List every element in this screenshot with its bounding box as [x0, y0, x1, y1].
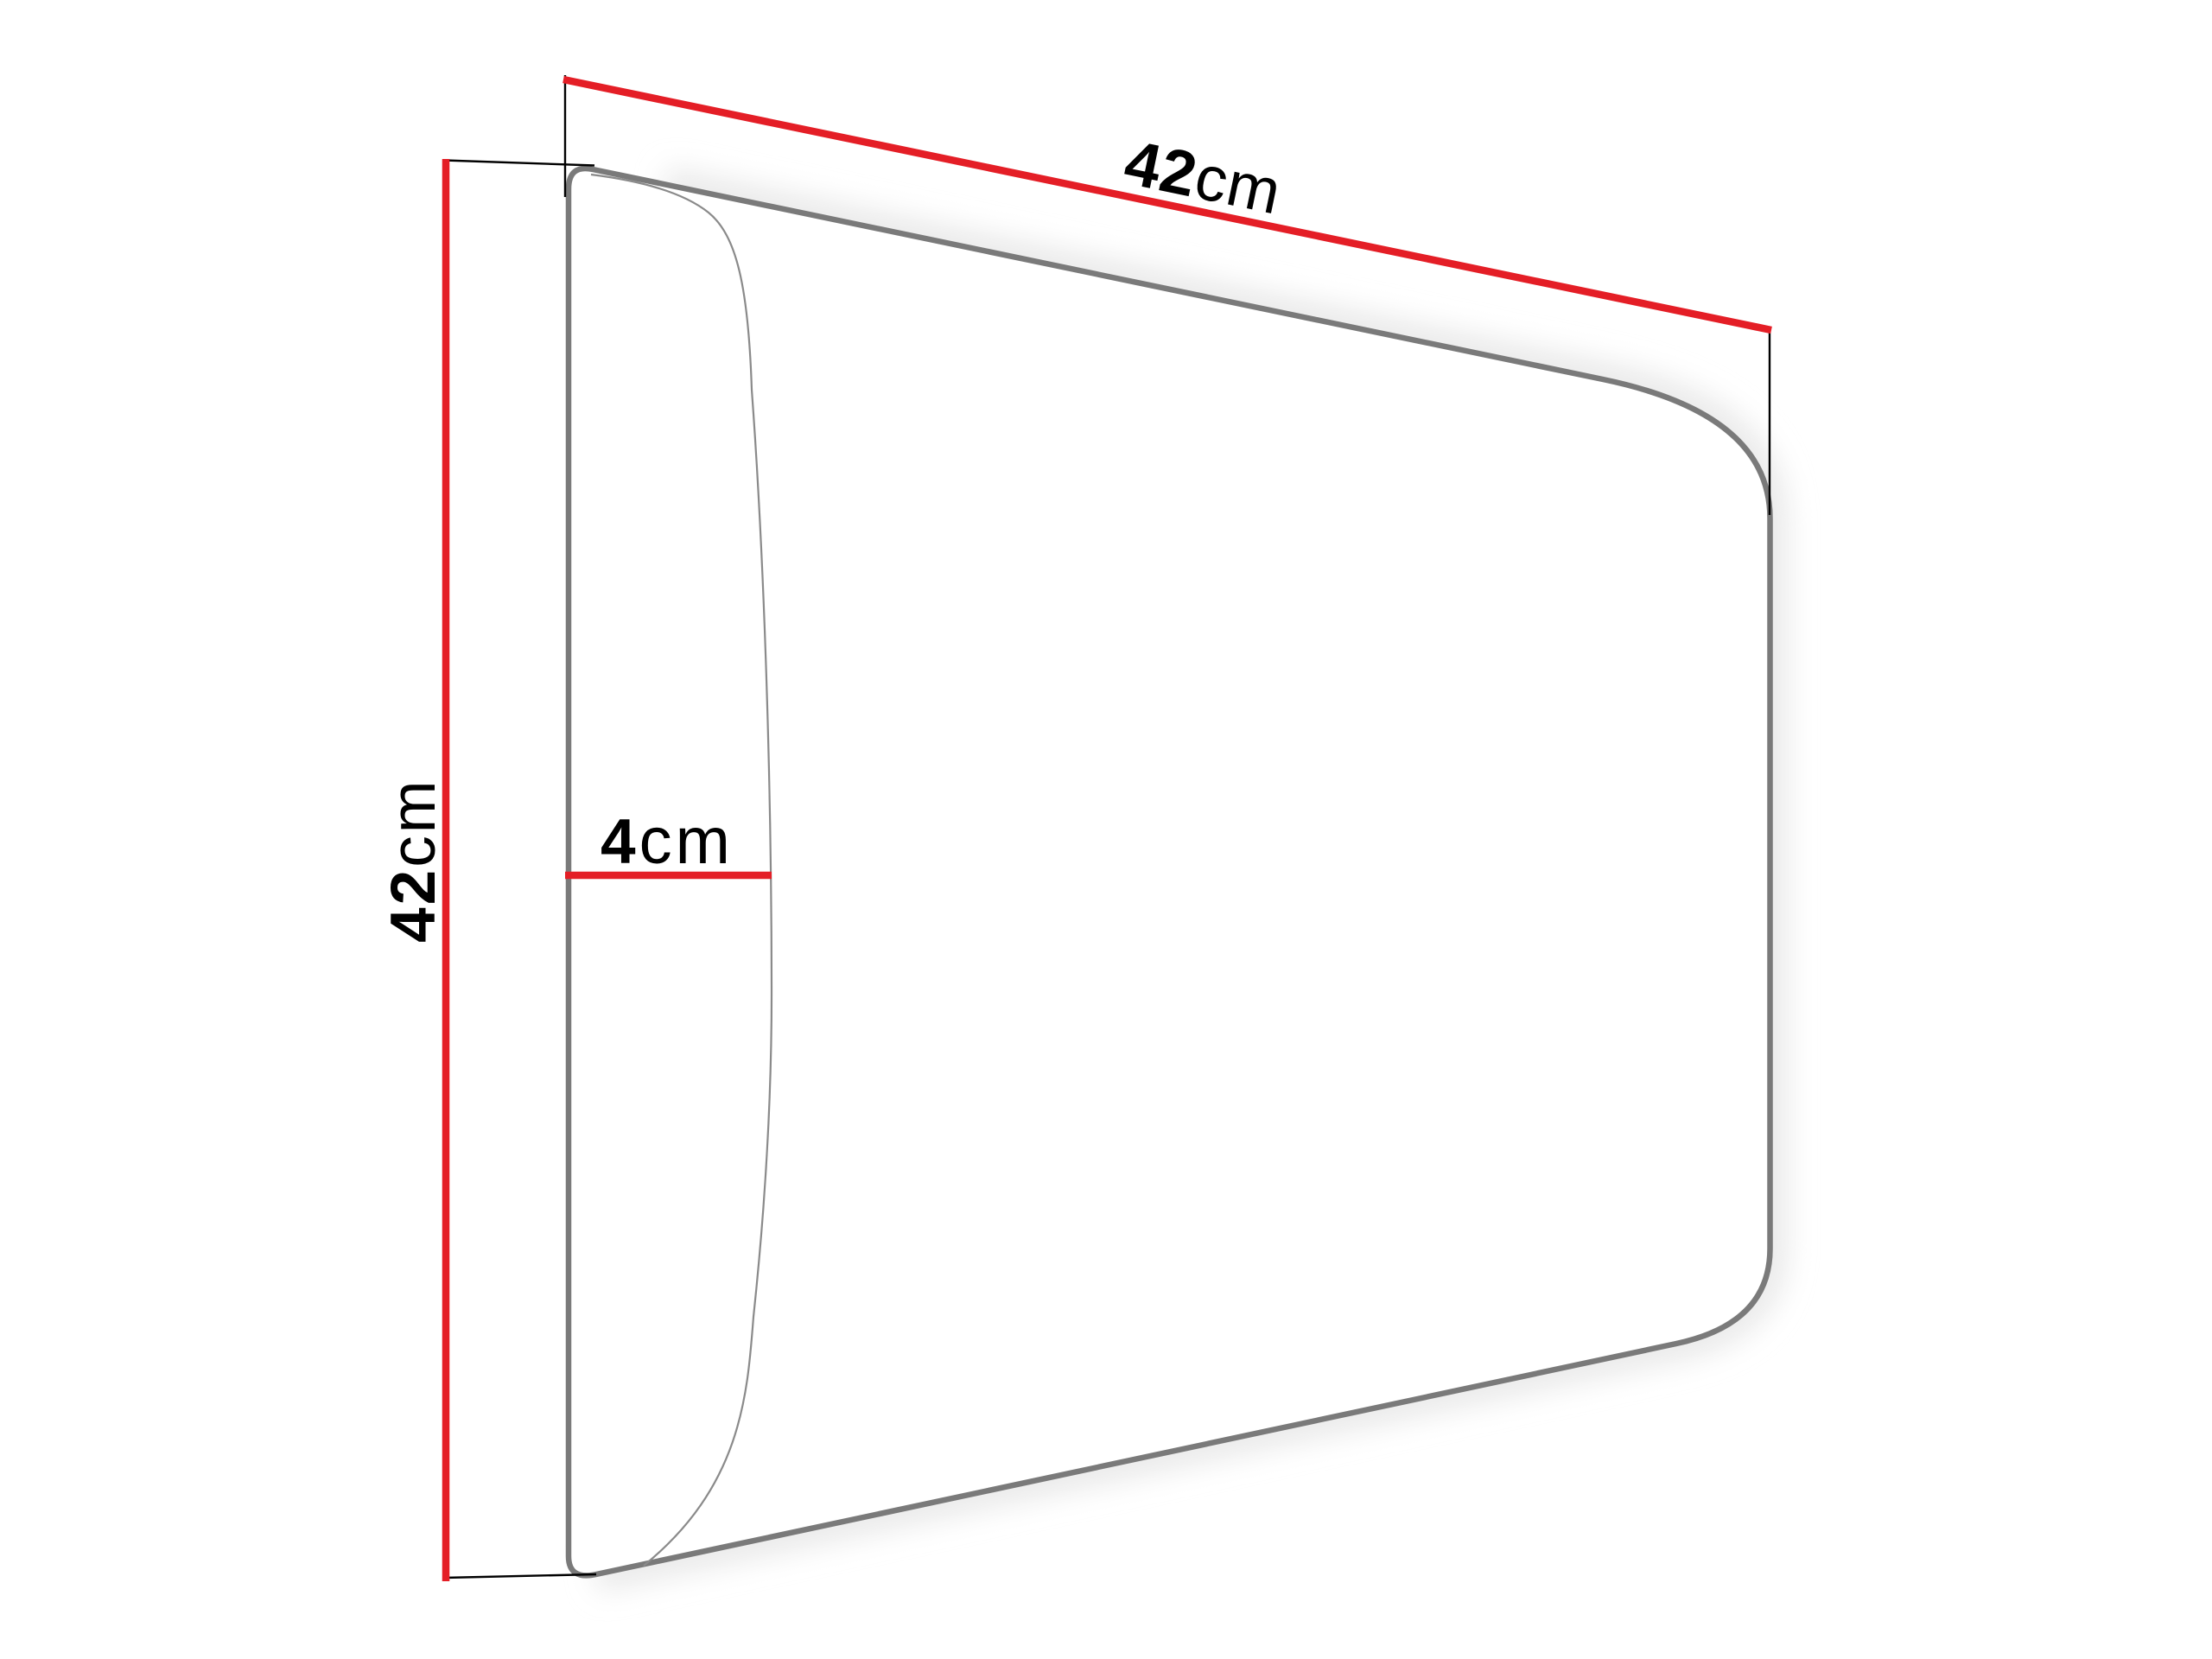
svg-text:42cm: 42cm — [1119, 127, 1287, 227]
svg-text:42cm: 42cm — [378, 778, 448, 943]
svg-text:4cm: 4cm — [601, 804, 734, 878]
